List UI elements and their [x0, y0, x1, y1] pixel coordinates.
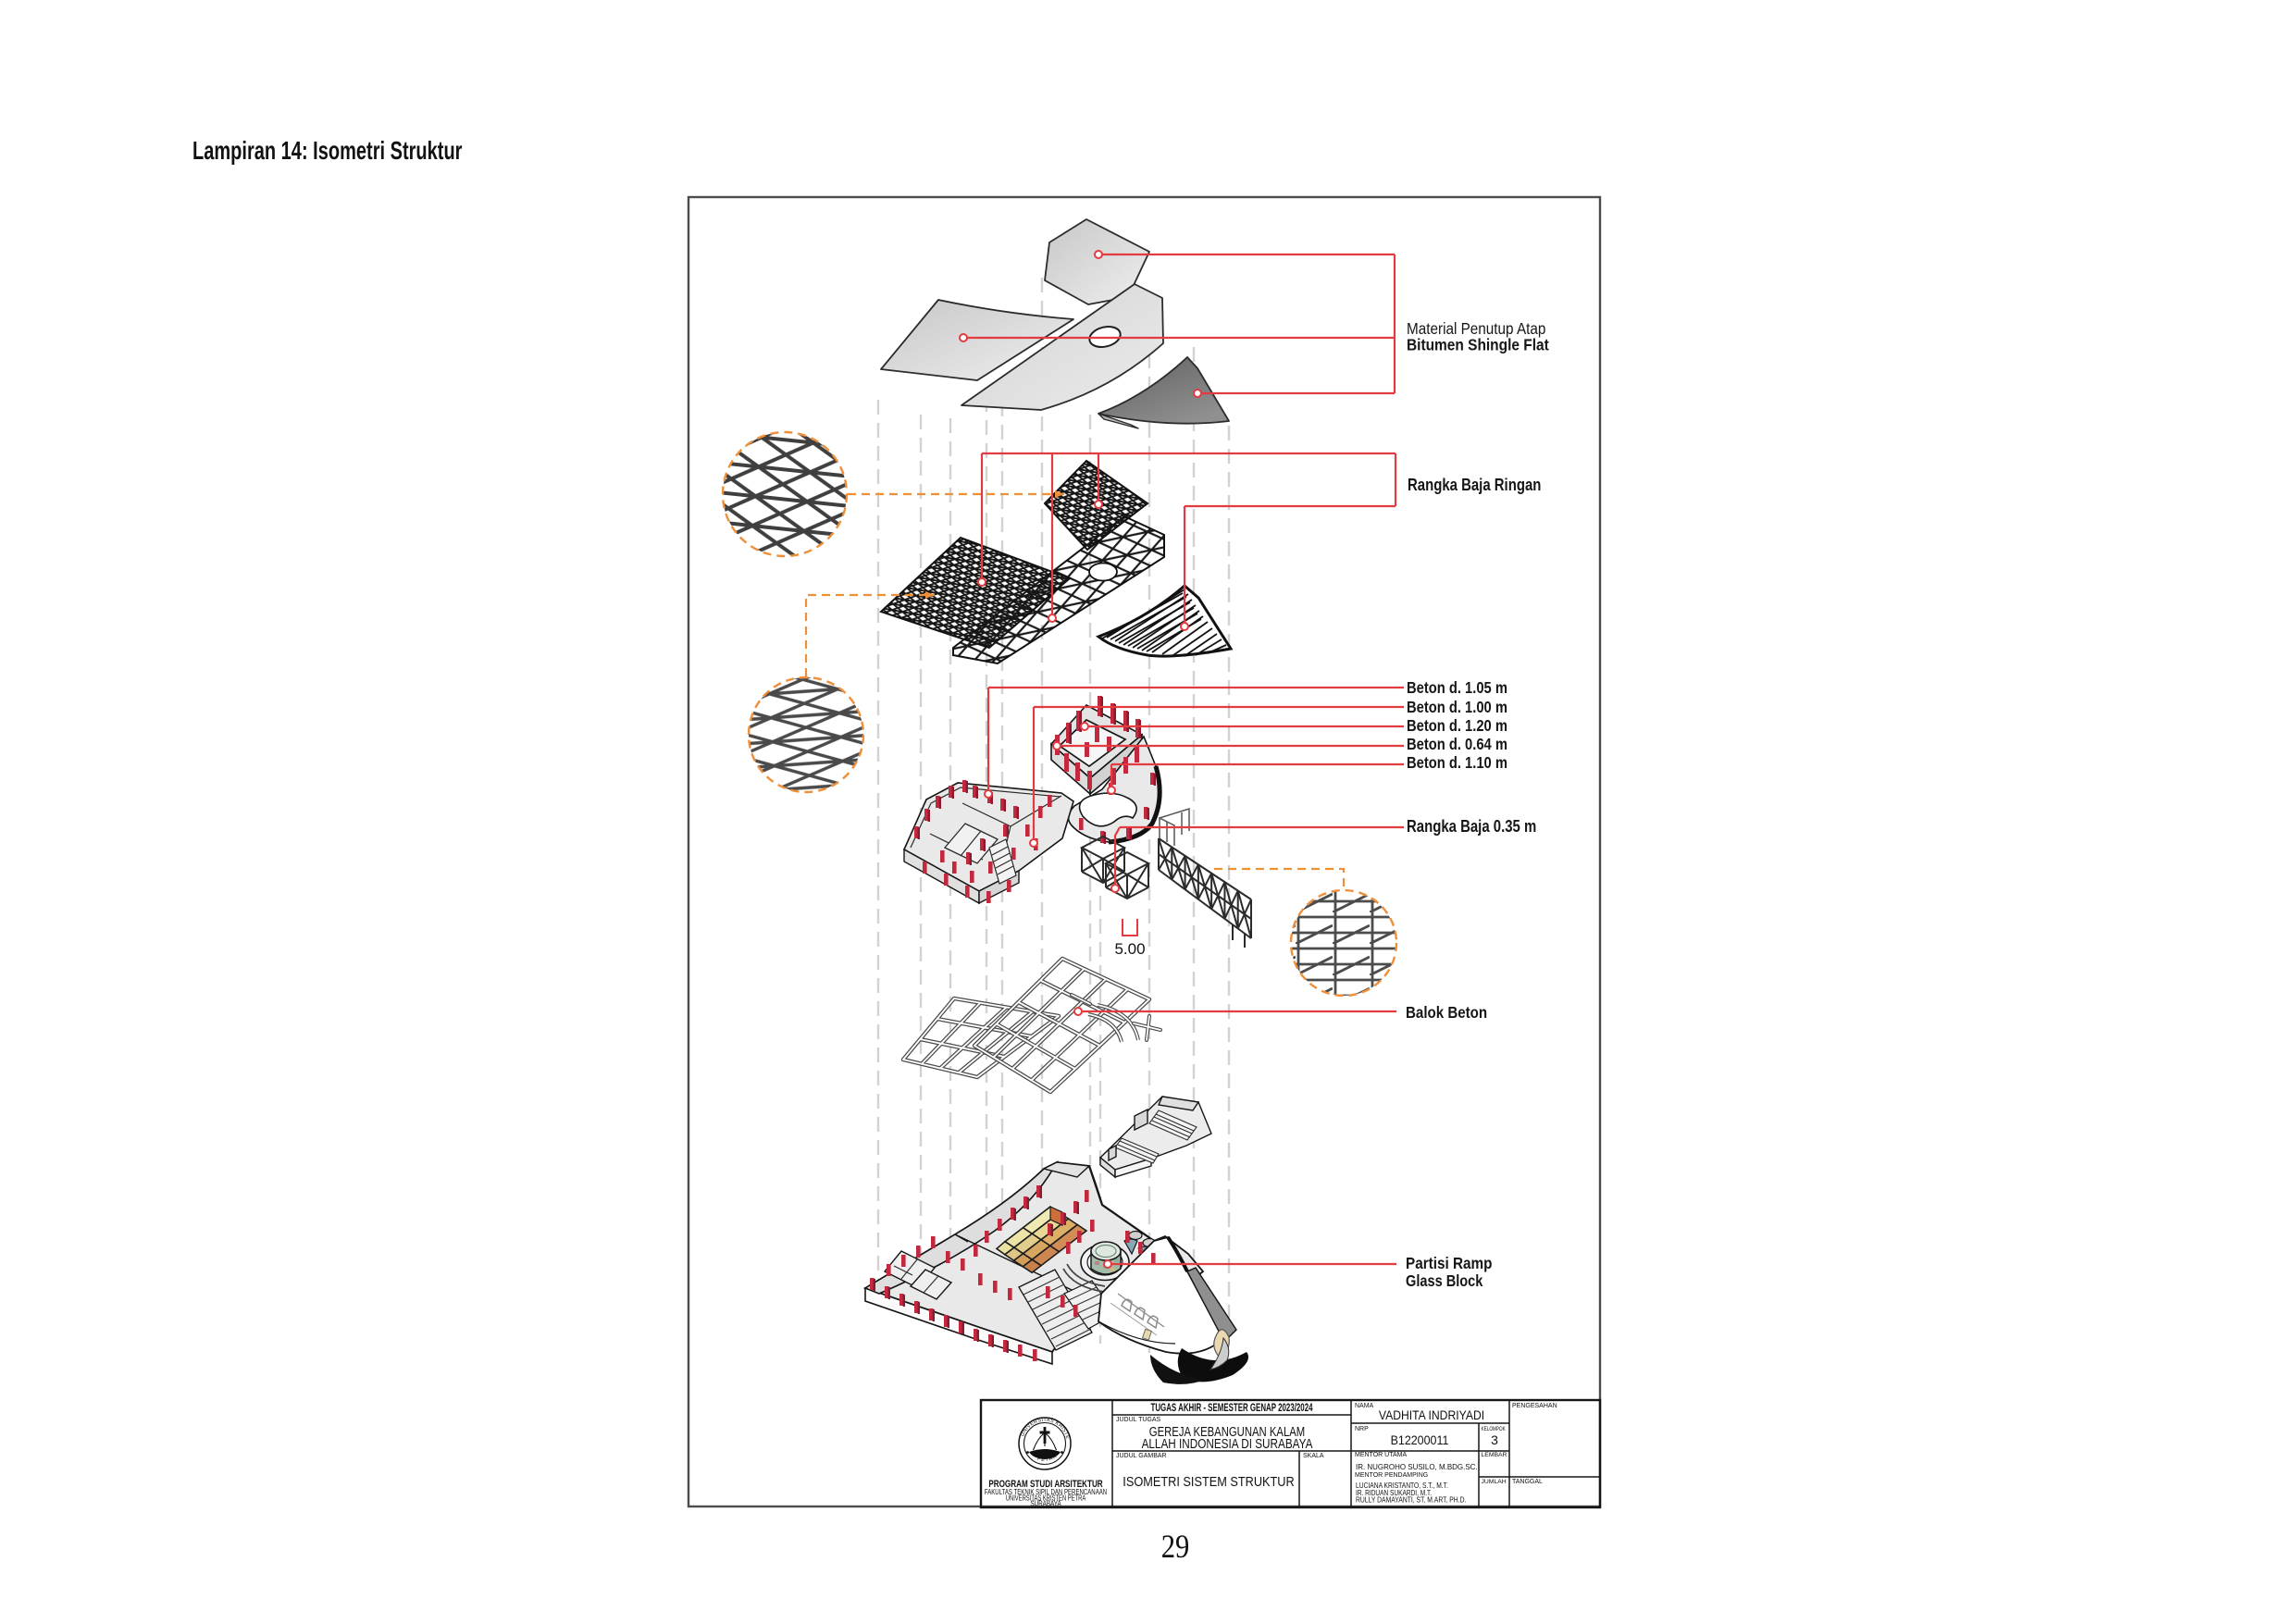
svg-text:VADHITA INDRIYADI: VADHITA INDRIYADI: [1379, 1407, 1484, 1422]
svg-text:ALLAH INDONESIA DI SURABAYA: ALLAH INDONESIA DI SURABAYA: [1142, 1436, 1313, 1451]
svg-text:PENGESAHAN: PENGESAHAN: [1512, 1403, 1557, 1409]
svg-text:Beton d. 1.10 m: Beton d. 1.10 m: [1407, 754, 1507, 773]
svg-text:JUMLAH: JUMLAH: [1482, 1479, 1507, 1485]
svg-text:UNIVERSITAS KRISTEN: UNIVERSITAS KRISTEN: [0, 0, 1071, 1440]
svg-text:Bitumen Shingle Flat: Bitumen Shingle Flat: [1407, 335, 1549, 353]
svg-text:RULLY DAMAYANTI, ST, M.ART, PH: RULLY DAMAYANTI, ST, M.ART, PH.D.: [1356, 1495, 1466, 1505]
svg-text:LEMBAR: LEMBAR: [1482, 1452, 1507, 1458]
svg-text:Beton d. 1.00 m: Beton d. 1.00 m: [1407, 699, 1507, 717]
svg-text:TANGGAL: TANGGAL: [1512, 1479, 1543, 1485]
svg-text:Rangka Baja Ringan: Rangka Baja Ringan: [1408, 476, 1541, 495]
svg-text:JUDUL TUGAS: JUDUL TUGAS: [1116, 1417, 1161, 1423]
svg-text:MENTOR UTAMA: MENTOR UTAMA: [1355, 1452, 1407, 1458]
svg-text:Glass Block: Glass Block: [1406, 1272, 1483, 1291]
svg-text:ISOMETRI SISTEM STRUKTUR: ISOMETRI SISTEM STRUKTUR: [1123, 1473, 1294, 1489]
svg-text:B12200011: B12200011: [1391, 1432, 1449, 1447]
svg-text:JUDUL GAMBAR: JUDUL GAMBAR: [1116, 1453, 1167, 1459]
svg-text:NAMA: NAMA: [1355, 1403, 1374, 1409]
svg-text:IR. NUGROHO SUSILO, M.BDG.SC.: IR. NUGROHO SUSILO, M.BDG.SC.: [1356, 1463, 1478, 1471]
svg-text:Beton d. 1.20 m: Beton d. 1.20 m: [1407, 717, 1507, 736]
svg-text:Rangka Baja 0.35 m: Rangka Baja 0.35 m: [1407, 817, 1536, 837]
svg-text:Partisi Ramp: Partisi Ramp: [1406, 1254, 1492, 1272]
svg-text:Balok Beton: Balok Beton: [1406, 1003, 1487, 1023]
svg-text:Beton d. 0.64 m: Beton d. 0.64 m: [1407, 736, 1507, 754]
svg-text:SURABAYA: SURABAYA: [1030, 1499, 1061, 1508]
svg-text:3: 3: [1491, 1432, 1498, 1447]
svg-text:Beton d. 1.05 m: Beton d. 1.05 m: [1407, 679, 1507, 698]
svg-text:5.00: 5.00: [1114, 940, 1145, 958]
svg-text:SKALA: SKALA: [1303, 1453, 1324, 1459]
svg-text:NRP: NRP: [1355, 1426, 1369, 1432]
svg-text:MENTOR PENDAMPING: MENTOR PENDAMPING: [1355, 1472, 1428, 1479]
svg-text:TUGAS AKHIR - SEMESTER GENAP 2: TUGAS AKHIR - SEMESTER GENAP 2023/2024: [1151, 1403, 1313, 1415]
